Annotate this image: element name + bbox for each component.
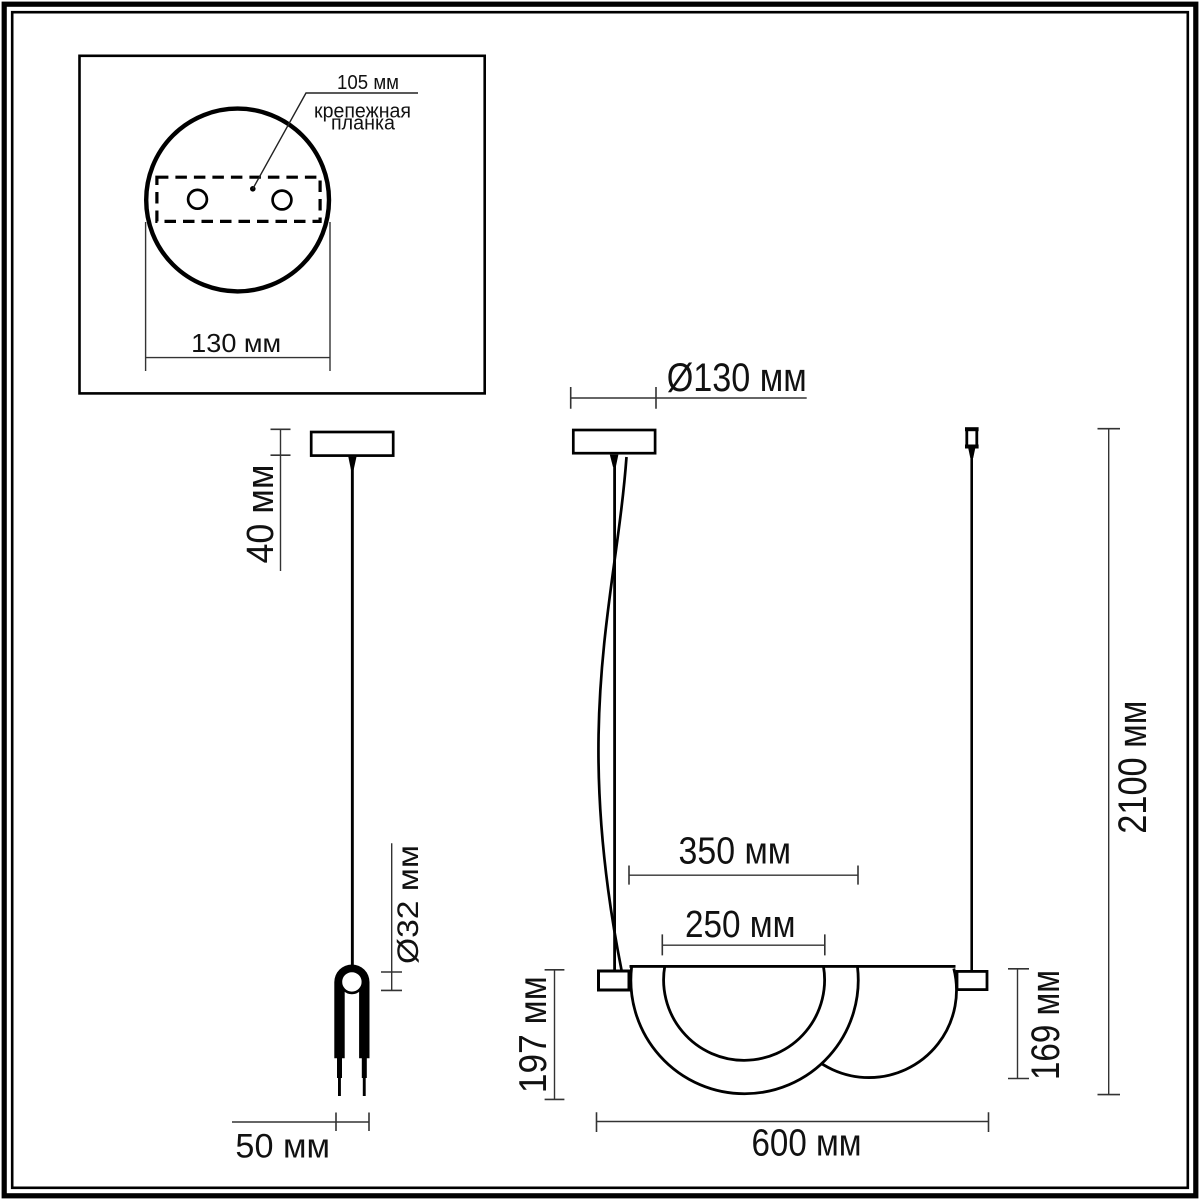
svg-text:600 мм: 600 мм — [752, 1122, 862, 1164]
svg-text:Ø130 мм: Ø130 мм — [667, 356, 807, 400]
svg-text:130 мм: 130 мм — [191, 328, 281, 358]
svg-text:2100 мм: 2100 мм — [1111, 701, 1155, 834]
svg-text:350 мм: 350 мм — [679, 830, 792, 872]
svg-text:планка: планка — [331, 113, 396, 135]
svg-text:40 мм: 40 мм — [240, 465, 282, 564]
svg-text:197 мм: 197 мм — [512, 976, 555, 1093]
svg-text:250 мм: 250 мм — [685, 904, 796, 946]
svg-text:105 мм: 105 мм — [337, 72, 399, 94]
svg-text:Ø32 мм: Ø32 мм — [392, 845, 425, 964]
svg-text:169 мм: 169 мм — [1024, 970, 1068, 1080]
svg-text:50 мм: 50 мм — [235, 1128, 330, 1166]
